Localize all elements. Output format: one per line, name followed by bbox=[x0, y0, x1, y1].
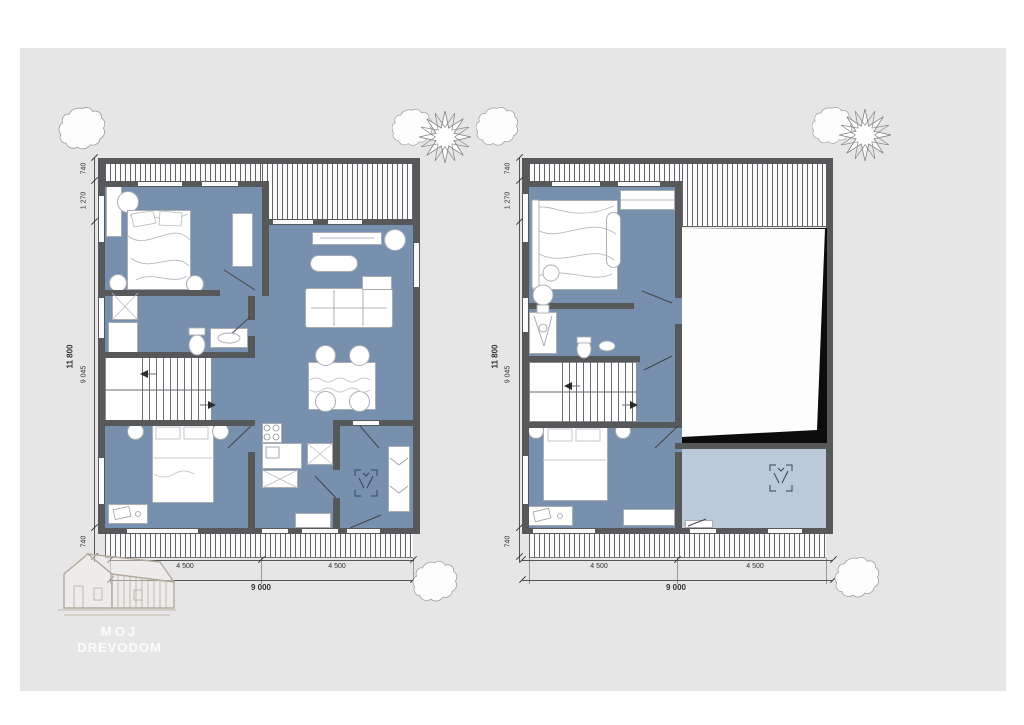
wall-segment bbox=[522, 158, 833, 164]
tree-deciduous-icon bbox=[476, 106, 518, 148]
threshold bbox=[685, 520, 713, 528]
void-open-below bbox=[682, 228, 825, 437]
ottoman bbox=[310, 255, 358, 272]
wall-segment bbox=[522, 422, 682, 428]
washing-machine bbox=[112, 293, 138, 320]
dim-label: 4 500 bbox=[317, 562, 357, 571]
window bbox=[523, 298, 528, 332]
closet bbox=[623, 509, 675, 526]
wall-segment bbox=[98, 181, 268, 187]
dimension-line bbox=[522, 580, 833, 581]
window bbox=[328, 220, 362, 224]
wall-segment bbox=[262, 181, 269, 296]
dim-label-total: 11 800 bbox=[66, 332, 75, 382]
wall-segment bbox=[98, 158, 420, 164]
dining-chair bbox=[315, 345, 336, 366]
bench bbox=[295, 513, 331, 528]
dim-label-total: 11 800 bbox=[491, 332, 500, 382]
logo-house-icon bbox=[56, 542, 180, 624]
window bbox=[273, 220, 313, 224]
window bbox=[690, 529, 716, 533]
wall-segment bbox=[826, 158, 833, 534]
window bbox=[523, 456, 528, 504]
dim-label-total: 9 000 bbox=[651, 583, 701, 592]
wall-segment bbox=[248, 452, 255, 528]
wall-segment bbox=[333, 498, 340, 528]
window bbox=[99, 196, 104, 242]
dim-label: 740 bbox=[504, 522, 513, 562]
dining-chair bbox=[349, 345, 370, 366]
gallery-floor bbox=[682, 449, 826, 528]
wall-segment bbox=[98, 352, 255, 358]
wardrobe bbox=[620, 190, 675, 210]
deck-hatch-top bbox=[262, 164, 413, 219]
window bbox=[262, 529, 288, 533]
dim-label: 9 045 bbox=[80, 355, 89, 395]
window bbox=[523, 194, 528, 242]
deck-hatch-top bbox=[529, 164, 682, 181]
floor-plan-right bbox=[522, 158, 833, 560]
dim-label: 4 500 bbox=[579, 562, 619, 571]
logo-line-1: MOJ bbox=[52, 624, 187, 640]
wall-segment bbox=[675, 443, 833, 449]
dim-label-total: 9 000 bbox=[236, 583, 286, 592]
wall-segment bbox=[675, 324, 682, 426]
deck-hatch-top bbox=[105, 164, 262, 181]
window bbox=[202, 182, 238, 186]
plant bbox=[384, 229, 406, 251]
sink-vanity bbox=[210, 328, 248, 348]
wall-segment bbox=[98, 290, 220, 296]
bed bbox=[152, 423, 214, 503]
tv-console bbox=[312, 232, 382, 245]
deck-hatch-bottom bbox=[529, 534, 826, 558]
window bbox=[138, 182, 182, 186]
window bbox=[99, 298, 104, 338]
desk bbox=[527, 506, 573, 526]
window bbox=[618, 182, 660, 186]
window bbox=[552, 182, 600, 186]
kitchen-counter bbox=[262, 443, 302, 469]
wardrobe bbox=[232, 213, 253, 267]
deck-hatch-top bbox=[682, 164, 826, 227]
sofa bbox=[305, 288, 393, 328]
bed bbox=[127, 210, 191, 290]
cabinet bbox=[262, 470, 298, 488]
dim-label: 4 500 bbox=[735, 562, 775, 571]
stove bbox=[262, 423, 282, 443]
logo-wordmark: MOJ DREVODOM bbox=[52, 624, 187, 656]
bed-bench bbox=[606, 212, 621, 268]
dining-chair bbox=[315, 391, 336, 412]
tree-coniferous-icon bbox=[838, 108, 892, 162]
desk bbox=[108, 504, 148, 524]
wall-segment bbox=[333, 426, 340, 470]
cabinet bbox=[307, 443, 333, 465]
wall-segment bbox=[675, 452, 682, 528]
wall-segment bbox=[522, 356, 640, 362]
wall-segment bbox=[248, 296, 255, 320]
wall-segment bbox=[98, 420, 255, 426]
dim-label: 1 270 bbox=[80, 181, 89, 221]
logo-line-2: DREVODOM bbox=[52, 640, 187, 656]
dim-label: 1 270 bbox=[504, 181, 513, 221]
dim-label: 9 045 bbox=[504, 355, 513, 395]
wall-segment bbox=[522, 303, 634, 309]
bath-counter bbox=[108, 322, 138, 355]
window bbox=[99, 458, 104, 504]
roof-shadow bbox=[682, 228, 827, 443]
window bbox=[347, 529, 380, 533]
window bbox=[127, 529, 198, 533]
window bbox=[302, 529, 338, 533]
stair-treads bbox=[562, 362, 637, 422]
tree-deciduous-icon bbox=[412, 560, 458, 604]
dining-chair bbox=[349, 391, 370, 412]
tree-coniferous-icon bbox=[418, 110, 472, 164]
desk bbox=[106, 185, 122, 237]
floor-plan-sheet: 740 1 270 9 045 740 11 800 4 500 4 500 9… bbox=[0, 0, 1024, 725]
window bbox=[414, 243, 419, 287]
tree-deciduous-icon bbox=[834, 556, 880, 600]
window bbox=[768, 529, 802, 533]
wall-segment bbox=[675, 181, 682, 298]
window bbox=[353, 421, 379, 425]
stair-treads bbox=[142, 357, 212, 421]
entry-closet bbox=[388, 446, 410, 512]
bed bbox=[543, 423, 608, 501]
wall-segment bbox=[413, 158, 420, 534]
tree-deciduous-icon bbox=[58, 106, 106, 152]
sofa-chaise bbox=[362, 276, 392, 290]
floor-plan-left bbox=[98, 158, 420, 560]
window bbox=[533, 529, 595, 533]
shower bbox=[529, 312, 557, 354]
